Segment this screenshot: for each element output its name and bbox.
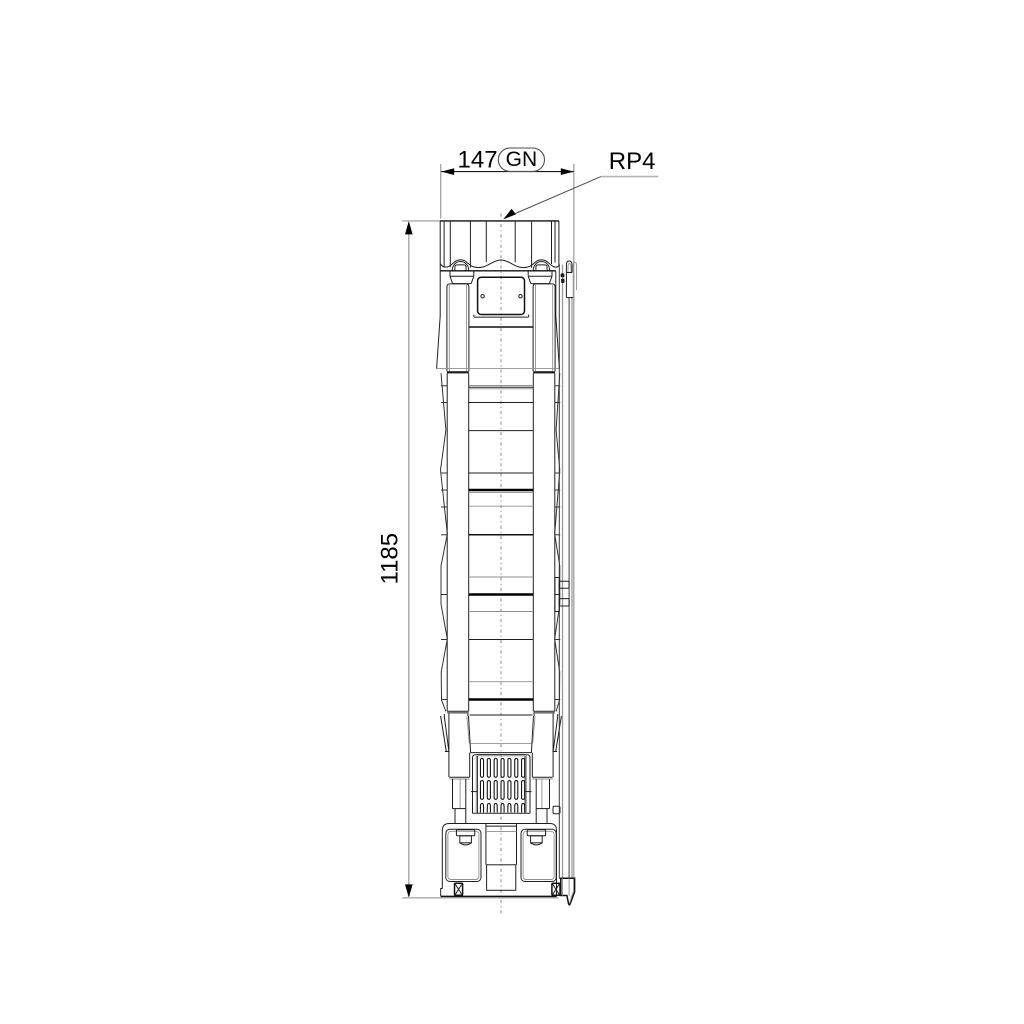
svg-text:GN: GN bbox=[506, 148, 538, 171]
svg-text:147: 147 bbox=[458, 147, 498, 174]
svg-text:1185: 1185 bbox=[377, 533, 404, 585]
svg-text:RP4: RP4 bbox=[609, 148, 656, 175]
